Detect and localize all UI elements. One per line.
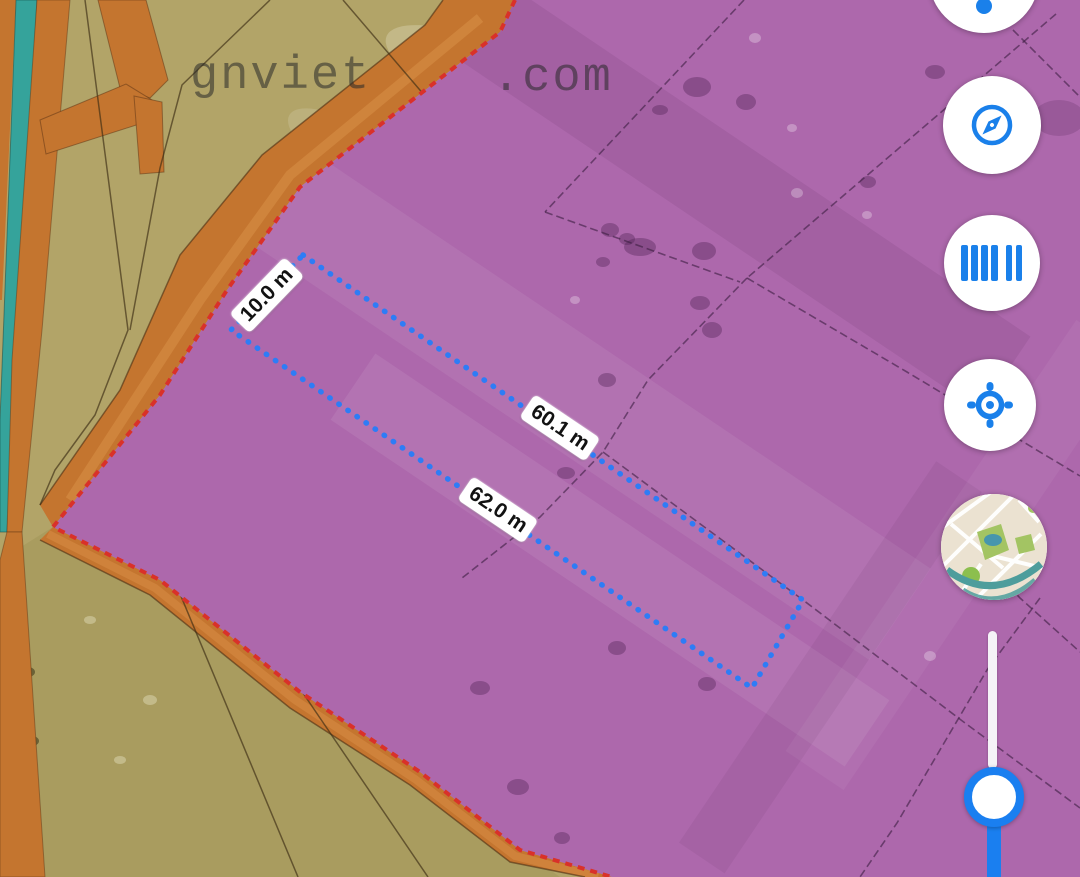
zoom-slider-knob[interactable]: [964, 767, 1024, 827]
locate-icon: [964, 379, 1016, 431]
basemap-switcher-button[interactable]: [941, 494, 1047, 600]
barcode-icon: [957, 239, 1027, 287]
map-canvas[interactable]: [0, 0, 1080, 877]
zoom-slider-fill: [987, 825, 1001, 877]
compass-button[interactable]: [943, 76, 1041, 174]
compass-icon: [964, 97, 1020, 153]
map-screen: gnviet .com 10.0 m 60.1 m 62.0 m: [0, 0, 1080, 877]
basemap-thumbnail: [941, 494, 1047, 600]
barcode-button[interactable]: [944, 215, 1040, 311]
zoom-slider-track[interactable]: [988, 631, 997, 769]
my-location-button[interactable]: [944, 359, 1036, 451]
marker-dot-icon: [976, 0, 992, 14]
